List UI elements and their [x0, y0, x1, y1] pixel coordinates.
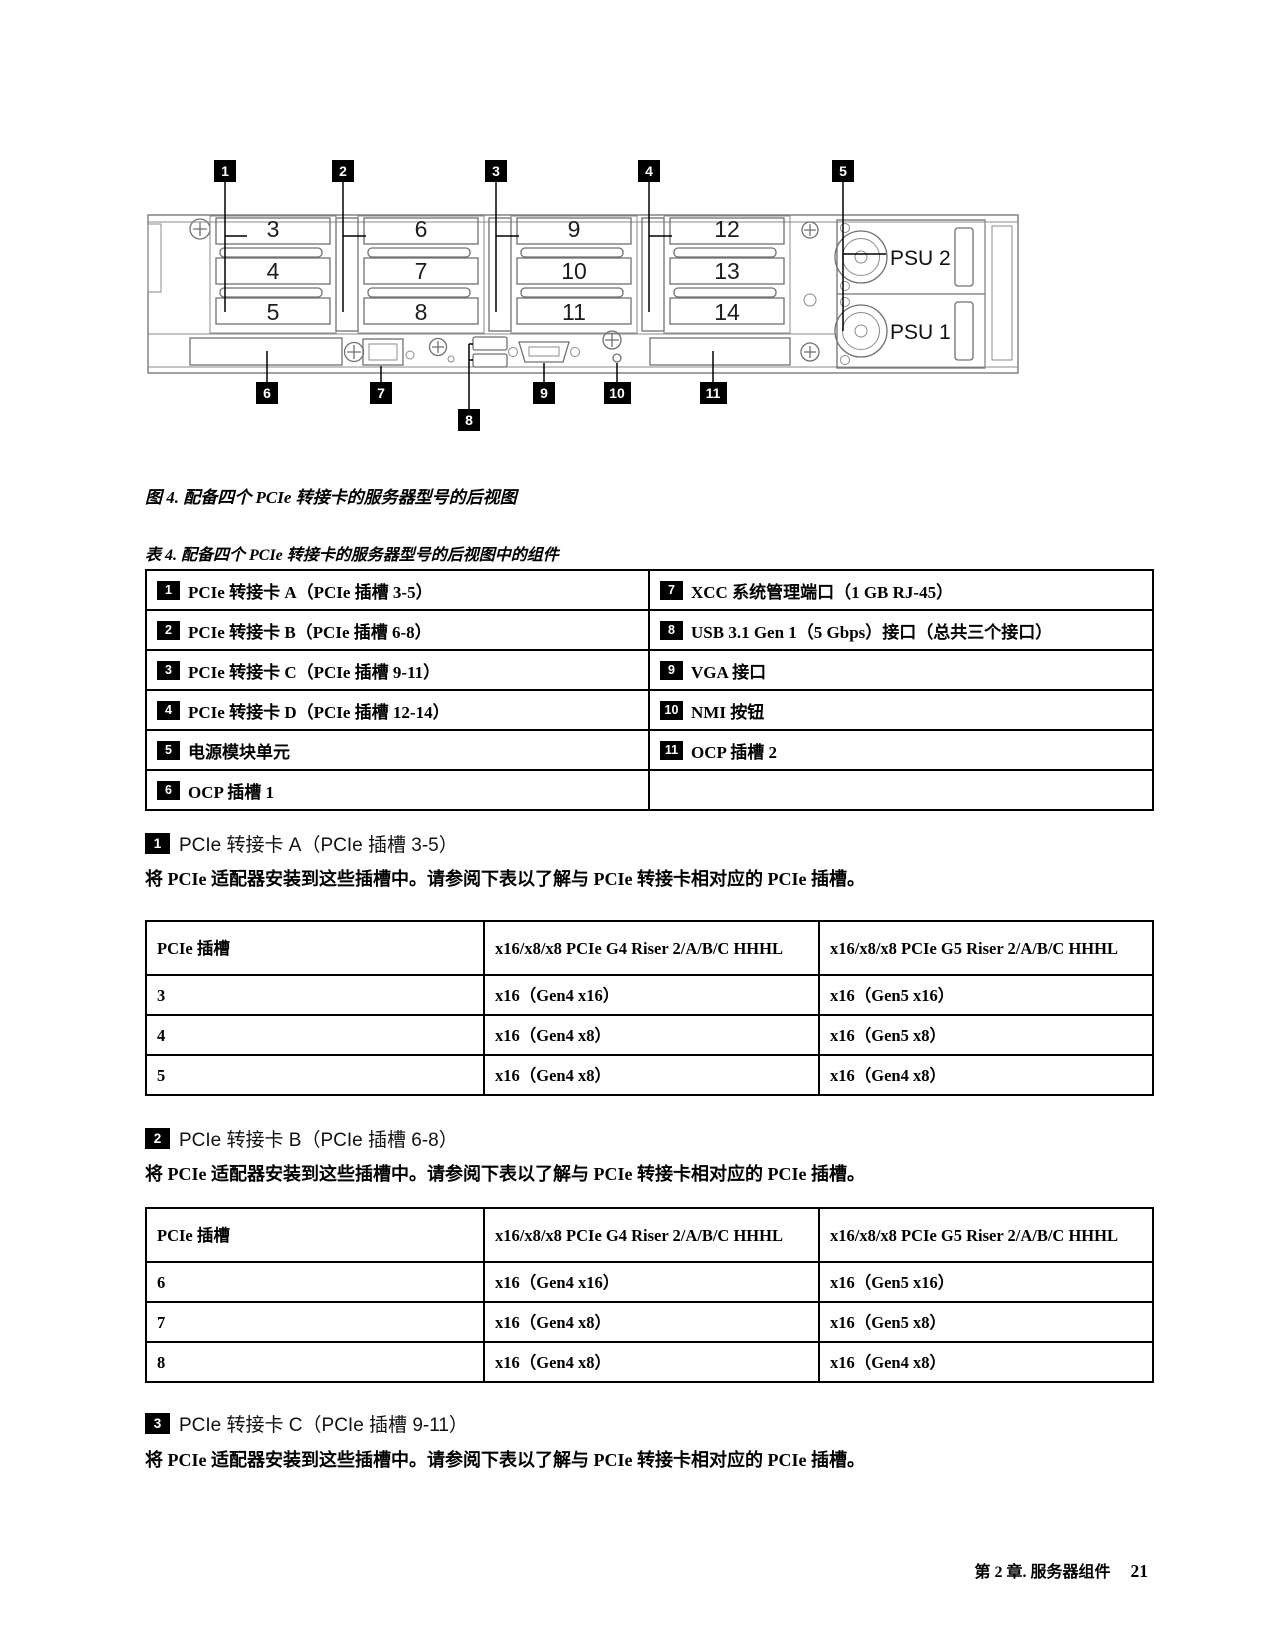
callout-9: 9	[540, 385, 548, 401]
callout-3: 3	[492, 163, 500, 179]
callout-badge: 3	[157, 661, 180, 680]
callout-badge: 1	[157, 581, 180, 600]
section-title: PCIe 转接卡 B（PCIe 插槽 6-8）	[179, 1125, 458, 1152]
callout-badge: 5	[157, 741, 180, 760]
column-header: x16/x8/x8 PCIe G4 Riser 2/A/B/C HHHL	[484, 1208, 819, 1262]
callout-4: 4	[645, 163, 653, 179]
callout-6: 6	[263, 385, 271, 401]
rear-io-ports	[148, 331, 837, 367]
slot-number: 4	[146, 1015, 484, 1055]
slot-value: x16（Gen4 x8）	[484, 1302, 819, 1342]
callout-5: 5	[839, 163, 847, 179]
column-header: x16/x8/x8 PCIe G5 Riser 2/A/B/C HHHL	[819, 921, 1153, 975]
chapter-label: 第 2 章. 服务器组件	[974, 1558, 1110, 1582]
slot-label: 8	[415, 299, 428, 325]
vga-port-shape	[519, 342, 569, 362]
psu-bay: PSU 2 PSU 1	[835, 220, 1012, 368]
slot-value: x16（Gen4 x8）	[819, 1055, 1153, 1095]
callout-badge: 1	[145, 833, 170, 854]
slot-value: x16（Gen5 x16）	[819, 975, 1153, 1015]
column-header: x16/x8/x8 PCIe G5 Riser 2/A/B/C HHHL	[819, 1208, 1153, 1262]
slot-label: 7	[415, 258, 428, 284]
table-row: 3 x16（Gen4 x16） x16（Gen5 x16）	[146, 975, 1153, 1015]
component-label: PCIe 转接卡 C（PCIe 插槽 9-11）	[188, 658, 440, 683]
page-footer: 第 2 章. 服务器组件 21	[974, 1558, 1148, 1582]
figure-caption: 图 4. 配备四个 PCIe 转接卡的服务器型号的后视图	[145, 483, 517, 508]
component-label: USB 3.1 Gen 1（5 Gbps）接口（总共三个接口）	[691, 618, 1052, 643]
psu2-label: PSU 2	[890, 247, 951, 270]
slot-number: 5	[146, 1055, 484, 1095]
usb-port-shape	[473, 337, 507, 350]
table-row: 1PCIe 转接卡 A（PCIe 插槽 3-5） 7XCC 系统管理端口（1 G…	[146, 570, 1153, 610]
page-number: 21	[1131, 1561, 1149, 1582]
slot-value: x16（Gen4 x8）	[484, 1055, 819, 1095]
slot-label: 13	[714, 258, 740, 284]
slot-label: 4	[267, 258, 280, 284]
table-row: 8 x16（Gen4 x8） x16（Gen4 x8）	[146, 1342, 1153, 1382]
slot-value: x16（Gen4 x8）	[484, 1342, 819, 1382]
manual-page: 3 4 5 6 7 8 9 10 11	[0, 0, 1275, 1650]
callout-badge: 2	[145, 1128, 170, 1149]
column-header: PCIe 插槽	[146, 1208, 484, 1262]
ocp-slot2-shape	[650, 338, 790, 365]
callout-badge: 3	[145, 1413, 170, 1434]
callout-badge: 7	[660, 581, 683, 600]
callout-badge: 8	[660, 621, 683, 640]
slot-value: x16（Gen4 x8）	[484, 1015, 819, 1055]
slot-label: 6	[415, 216, 428, 242]
psu1-label: PSU 1	[890, 321, 951, 344]
slot-number: 6	[146, 1262, 484, 1302]
section-title: PCIe 转接卡 C（PCIe 插槽 9-11）	[179, 1410, 468, 1437]
server-rear-diagram: 3 4 5 6 7 8 9 10 11	[142, 148, 1022, 440]
section-title: PCIe 转接卡 A（PCIe 插槽 3-5）	[179, 830, 458, 857]
callout-11: 11	[706, 385, 721, 401]
component-label: 电源模块单元	[188, 738, 290, 763]
table-caption: 表 4. 配备四个 PCIe 转接卡的服务器型号的后视图中的组件	[145, 541, 559, 565]
slot-number: 3	[146, 975, 484, 1015]
table-row: 4 x16（Gen4 x8） x16（Gen5 x8）	[146, 1015, 1153, 1055]
callout-badge: 2	[157, 621, 180, 640]
pcie-riser-slots: 3 4 5 6 7 8 9 10 11	[210, 216, 818, 333]
slot-number: 7	[146, 1302, 484, 1342]
slot-label: 3	[267, 216, 280, 242]
callout-badge: 4	[157, 701, 180, 720]
slot-label: 5	[267, 299, 280, 325]
component-label: VGA 接口	[691, 658, 766, 683]
callout-8: 8	[465, 412, 473, 428]
body-paragraph: 将 PCIe 适配器安装到这些插槽中。请参阅下表以了解与 PCIe 转接卡相对应…	[145, 1161, 1157, 1187]
slot-value: x16（Gen4 x8）	[819, 1342, 1153, 1382]
slot-label: 9	[568, 216, 581, 242]
slot-value: x16（Gen5 x8）	[819, 1015, 1153, 1055]
table-row: 3PCIe 转接卡 C（PCIe 插槽 9-11） 9VGA 接口	[146, 650, 1153, 690]
table-row: 5 x16（Gen4 x8） x16（Gen4 x8）	[146, 1055, 1153, 1095]
callout-badge: 9	[660, 661, 683, 680]
callout-1: 1	[221, 163, 229, 179]
ocp-slot1-shape	[190, 338, 342, 365]
component-label: NMI 按钮	[691, 698, 764, 723]
slot-value: x16（Gen4 x16）	[484, 975, 819, 1015]
table-header-row: PCIe 插槽 x16/x8/x8 PCIe G4 Riser 2/A/B/C …	[146, 1208, 1153, 1262]
component-label: OCP 插槽 2	[691, 738, 777, 763]
table-header-row: PCIe 插槽 x16/x8/x8 PCIe G4 Riser 2/A/B/C …	[146, 921, 1153, 975]
table-row: 6 x16（Gen4 x16） x16（Gen5 x16）	[146, 1262, 1153, 1302]
slot-value: x16（Gen5 x8）	[819, 1302, 1153, 1342]
nmi-button-shape	[613, 354, 621, 362]
component-label: PCIe 转接卡 B（PCIe 插槽 6-8）	[188, 618, 432, 643]
callout-badges: 1 2 3 4 5 6 7 8 9 10 11	[214, 160, 854, 431]
column-header: PCIe 插槽	[146, 921, 484, 975]
section-heading-riser-c: 3 PCIe 转接卡 C（PCIe 插槽 9-11）	[145, 1410, 468, 1437]
component-label: PCIe 转接卡 A（PCIe 插槽 3-5）	[188, 578, 433, 603]
callout-badge: 6	[157, 781, 180, 800]
table-row: 4PCIe 转接卡 D（PCIe 插槽 12-14） 10NMI 按钮	[146, 690, 1153, 730]
body-paragraph: 将 PCIe 适配器安装到这些插槽中。请参阅下表以了解与 PCIe 转接卡相对应…	[145, 1447, 1157, 1473]
table-row: 2PCIe 转接卡 B（PCIe 插槽 6-8） 8USB 3.1 Gen 1（…	[146, 610, 1153, 650]
section-heading-riser-a: 1 PCIe 转接卡 A（PCIe 插槽 3-5）	[145, 830, 458, 857]
callout-badge: 11	[660, 741, 683, 760]
usb-port-shape	[473, 354, 507, 367]
column-header: x16/x8/x8 PCIe G4 Riser 2/A/B/C HHHL	[484, 921, 819, 975]
slot-label: 10	[561, 258, 587, 284]
callout-10: 10	[609, 385, 625, 401]
pcie-slot-table-riser-a: PCIe 插槽 x16/x8/x8 PCIe G4 Riser 2/A/B/C …	[145, 920, 1154, 1096]
slot-label: 11	[562, 299, 586, 325]
component-table: 1PCIe 转接卡 A（PCIe 插槽 3-5） 7XCC 系统管理端口（1 G…	[145, 569, 1154, 811]
table-row: 6OCP 插槽 1	[146, 770, 1153, 810]
slot-label: 14	[714, 299, 740, 325]
callout-badge: 10	[660, 701, 683, 720]
component-label: PCIe 转接卡 D（PCIe 插槽 12-14）	[188, 698, 450, 723]
slot-value: x16（Gen4 x16）	[484, 1262, 819, 1302]
component-label: XCC 系统管理端口（1 GB RJ-45）	[691, 578, 953, 603]
slot-value: x16（Gen5 x16）	[819, 1262, 1153, 1302]
component-label: OCP 插槽 1	[188, 778, 274, 803]
body-paragraph: 将 PCIe 适配器安装到这些插槽中。请参阅下表以了解与 PCIe 转接卡相对应…	[145, 866, 1157, 892]
section-heading-riser-b: 2 PCIe 转接卡 B（PCIe 插槽 6-8）	[145, 1125, 458, 1152]
table-row: 5电源模块单元 11OCP 插槽 2	[146, 730, 1153, 770]
callout-2: 2	[339, 163, 347, 179]
table-row: 7 x16（Gen4 x8） x16（Gen5 x8）	[146, 1302, 1153, 1342]
callout-7: 7	[377, 385, 385, 401]
slot-number: 8	[146, 1342, 484, 1382]
slot-label: 12	[714, 216, 740, 242]
pcie-slot-table-riser-b: PCIe 插槽 x16/x8/x8 PCIe G4 Riser 2/A/B/C …	[145, 1207, 1154, 1383]
